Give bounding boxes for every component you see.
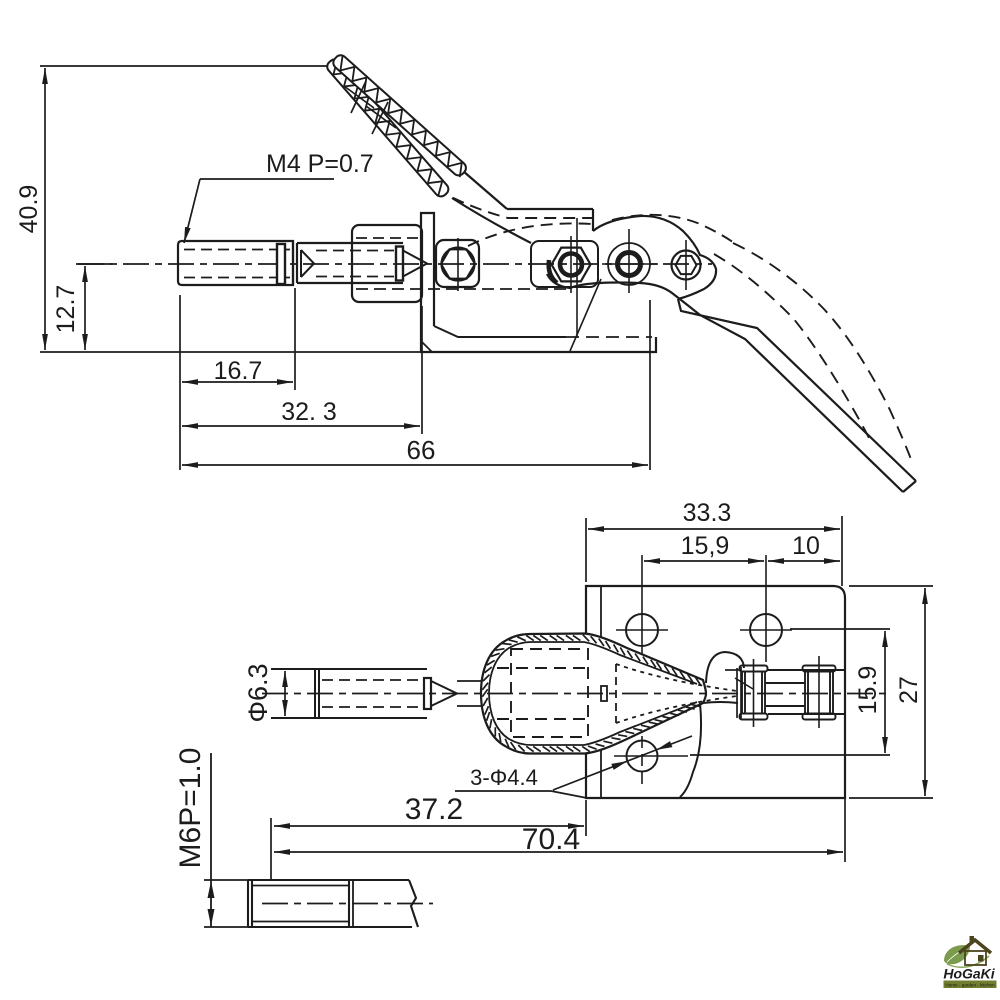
svg-text:M4 P=0.7: M4 P=0.7 xyxy=(266,150,374,178)
svg-text:15,9: 15,9 xyxy=(681,532,730,560)
svg-text:HoGaKi: HoGaKi xyxy=(943,966,995,982)
svg-text:15.9: 15.9 xyxy=(854,666,882,715)
svg-text:Home - garden - kitchen: Home - garden - kitchen xyxy=(945,982,995,987)
svg-text:16.7: 16.7 xyxy=(214,357,263,385)
svg-text:37.2: 37.2 xyxy=(405,793,463,826)
svg-text:70.4: 70.4 xyxy=(522,823,580,856)
svg-text:3-Φ4.4: 3-Φ4.4 xyxy=(470,765,538,790)
svg-text:10: 10 xyxy=(792,532,820,560)
svg-text:27: 27 xyxy=(895,676,923,704)
svg-text:12.7: 12.7 xyxy=(52,285,80,334)
svg-text:Φ6.3: Φ6.3 xyxy=(243,663,273,722)
svg-text:40.9: 40.9 xyxy=(15,185,43,234)
svg-text:32. 3: 32. 3 xyxy=(281,398,337,426)
svg-text:33.3: 33.3 xyxy=(683,499,732,527)
svg-text:66: 66 xyxy=(407,435,436,465)
svg-text:M6P=1.0: M6P=1.0 xyxy=(174,748,207,869)
